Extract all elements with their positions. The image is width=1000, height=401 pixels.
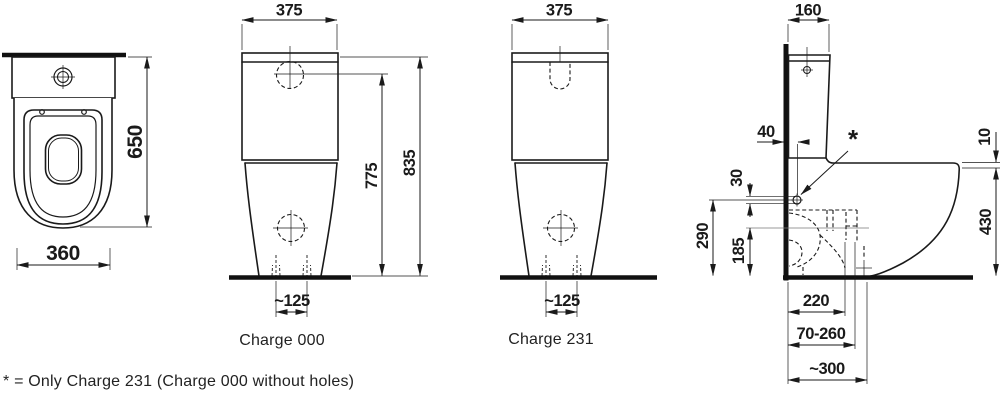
wc-dimension-drawing: 650 360 375 — [0, 0, 1000, 401]
top-view: 650 360 — [2, 55, 152, 270]
dim-300: ~300 — [788, 360, 867, 380]
dim-70-260-label: 70-260 — [797, 325, 846, 343]
dim-375-charge000: 375 — [242, 2, 337, 51]
dim-30: 30 — [728, 169, 750, 217]
front-view-charge-231: 375 ~125 Charge 231 — [500, 2, 657, 349]
dim-185: 185 — [730, 228, 750, 276]
dim-220-label: 220 — [803, 292, 830, 310]
dim-775-label: 775 — [363, 163, 381, 190]
dim-10-label: 10 — [976, 128, 994, 146]
model-label-charge-000: Charge 000 — [239, 332, 325, 349]
dim-300-label: ~300 — [809, 360, 845, 378]
dim-375-charge231: 375 — [512, 2, 608, 51]
dim-835: 835 — [340, 57, 428, 276]
bowl-right-edge — [321, 163, 337, 276]
dim-375-label: 375 — [546, 2, 573, 20]
dim-185-label: 185 — [730, 238, 748, 265]
dim-835-label: 835 — [401, 150, 419, 177]
dim-360: 360 — [17, 242, 110, 270]
dim-30-label: 30 — [728, 169, 746, 187]
bowl-profile — [826, 158, 959, 278]
hidden-trap-outline — [789, 210, 872, 276]
dim-360-label: 360 — [46, 242, 80, 265]
dim-290-label: 290 — [694, 223, 712, 250]
dim-70-260: 70-260 — [788, 325, 855, 345]
dim-160-label: 160 — [795, 2, 822, 20]
model-label-charge-231: Charge 231 — [508, 331, 594, 348]
cistern-outline — [12, 57, 115, 98]
dim-775: 775 — [363, 74, 382, 276]
dim-10: 10 — [976, 128, 996, 162]
dim-160: 160 — [788, 2, 829, 53]
technical-drawing-page: 650 360 375 — [0, 0, 1000, 401]
dim-125-label: ~125 — [274, 292, 310, 310]
cistern-profile — [789, 55, 831, 158]
cistern-outline — [512, 53, 608, 160]
dim-125-charge000: ~125 — [274, 281, 310, 317]
dim-40-label: 40 — [757, 123, 775, 141]
dim-430-label: 430 — [977, 209, 995, 236]
dim-220: 220 — [788, 292, 845, 312]
front-view-charge-000: 375 775 835 — [229, 2, 428, 350]
outlet-center-mark — [856, 260, 872, 276]
dim-125-charge231: ~125 — [544, 281, 580, 317]
bowl-left-edge — [515, 163, 529, 276]
side-view: 160 10 430 40 * — [694, 2, 1000, 385]
dim-125-label: ~125 — [544, 292, 580, 310]
bowl-right-edge — [591, 163, 607, 276]
floor-fixing-holes — [542, 255, 581, 276]
bowl-outline — [14, 98, 112, 228]
dim-650-label: 650 — [124, 125, 147, 159]
dim-375-label: 375 — [276, 2, 303, 20]
bowl-left-edge — [245, 163, 259, 276]
drain-hole — [543, 210, 578, 246]
dim-430: 430 — [977, 168, 996, 276]
floor-fixing-holes — [272, 255, 311, 276]
drain-hole — [273, 210, 308, 246]
footnote: * = Only Charge 231 (Charge 000 without … — [3, 373, 354, 390]
asterisk-mark: * — [848, 124, 859, 154]
